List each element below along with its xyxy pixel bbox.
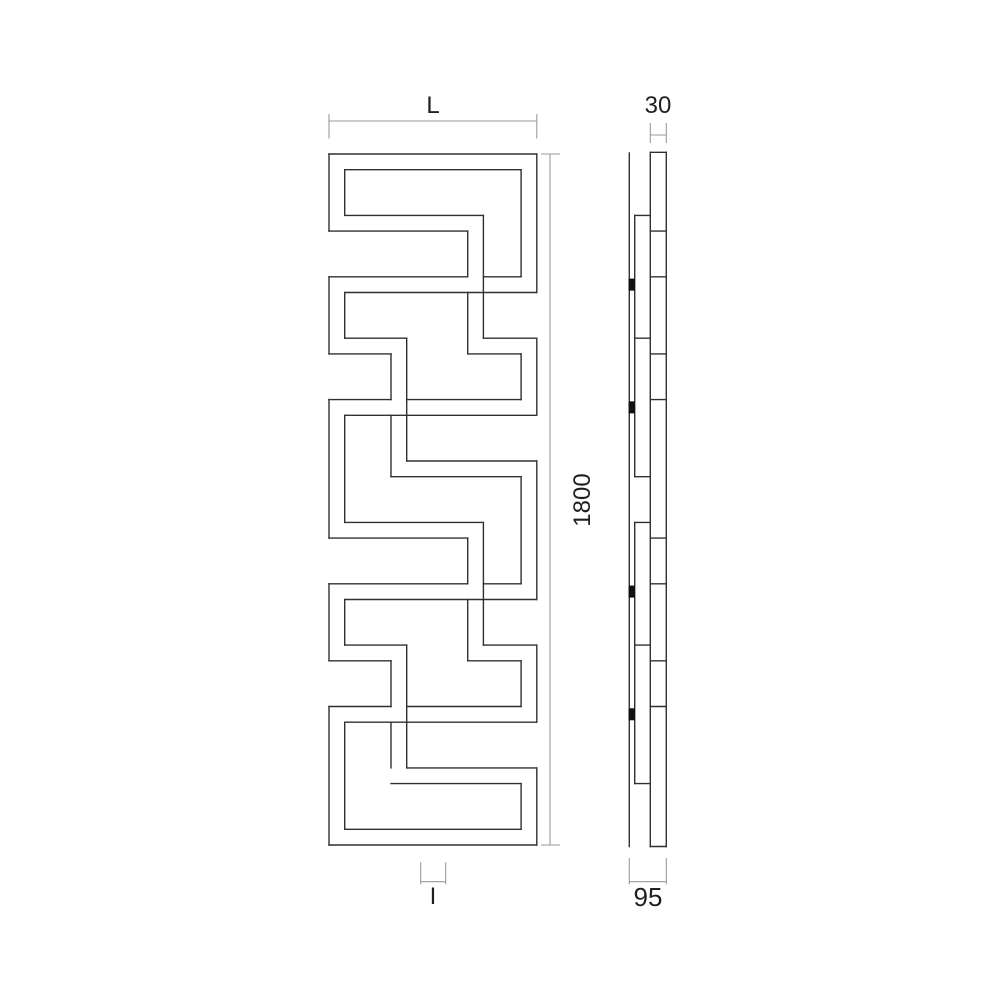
wall-clip-icon bbox=[629, 586, 635, 598]
dim-label-total-depth: 95 bbox=[634, 882, 663, 912]
wall-clip-icon bbox=[629, 708, 635, 720]
dim-label-tube-depth: 30 bbox=[645, 92, 672, 119]
side-view-outline bbox=[629, 152, 666, 846]
dim-label-width: L bbox=[426, 92, 439, 119]
dimension-lines bbox=[329, 114, 666, 884]
wall-clip-icon bbox=[629, 401, 635, 413]
dim-label-interaxis: I bbox=[430, 883, 437, 910]
dim-label-height: 1800 bbox=[569, 473, 596, 526]
technical-drawing-canvas: L 30 1800 95 I bbox=[0, 0, 1000, 1000]
front-view-outline bbox=[329, 154, 537, 845]
wall-clip-icon bbox=[629, 279, 635, 291]
radiator-dimension-drawing: L 30 1800 95 I bbox=[0, 0, 1000, 1000]
